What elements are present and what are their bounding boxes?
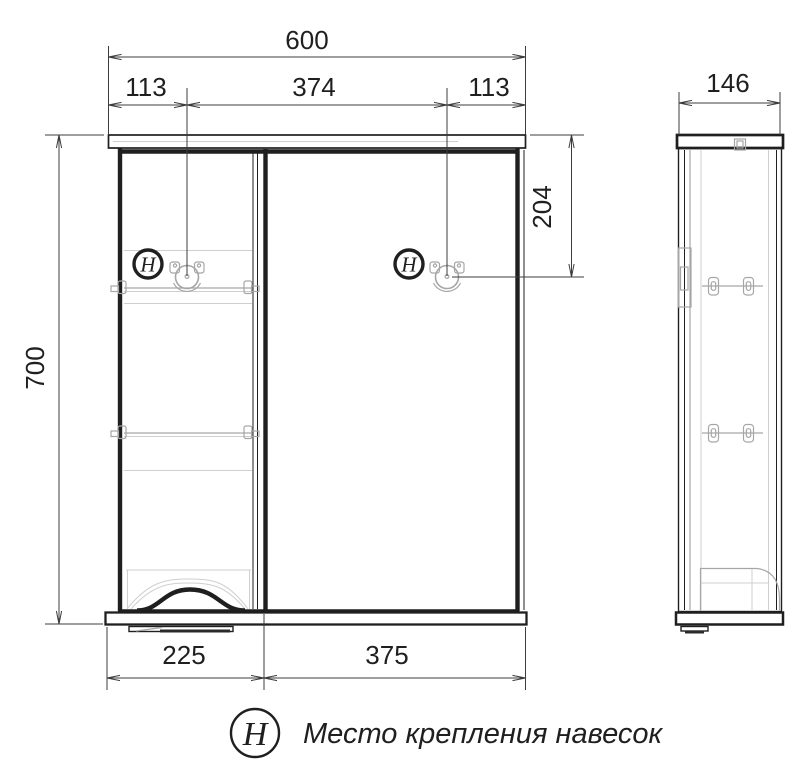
side-foot [681,627,708,634]
dim-hanger-top-offset: 204 [527,135,574,277]
decorative-arch [126,570,251,611]
hanger-mark-letter: H [139,253,157,277]
dim-text-hanger-right-offset: 113 [468,72,509,102]
shelf-clip [111,281,126,294]
side-top-panel [677,135,783,148]
dim-depth: 146 [679,68,780,106]
dim-hanger-offsets: 113 374 113 [109,72,526,108]
legend-hanger-symbol-letter: H [242,716,270,753]
front-view: H H [106,135,527,633]
dim-total-width: 600 [109,25,526,60]
hanger-mark-right: H [395,250,423,278]
dim-text-left-section-width: 225 [162,640,205,670]
hanger-mark-letter: H [400,253,418,277]
dim-text-hanger-left-offset: 113 [125,72,166,102]
dim-text-depth: 146 [706,68,749,98]
shelf-clip [111,426,126,439]
side-view [676,135,783,634]
dim-text-hanger-spacing: 374 [292,72,335,102]
front-plinth-foot [129,627,233,633]
glass-shelf-2 [111,426,259,471]
hanger-mark-left: H [134,250,162,278]
drawing-sheet: H H [0,0,810,759]
legend: H Место крепления навесок [231,709,664,757]
front-bottom-panel [106,613,527,625]
dimension-annotations: 600 113 374 113 146 700 [20,25,780,690]
dim-bottom-widths: 225 375 [107,640,526,681]
side-bottom-panel [676,613,783,625]
legend-label: Место крепления навесок [303,718,664,750]
dim-text-total-width: 600 [285,25,328,55]
dim-height: 700 [20,135,62,624]
cabinet-technical-drawing: H H [0,0,810,759]
dim-text-height: 700 [20,346,50,389]
dim-text-door-width: 375 [365,640,408,670]
dim-text-hanger-top-offset: 204 [527,185,557,228]
side-body-outline [679,149,782,612]
